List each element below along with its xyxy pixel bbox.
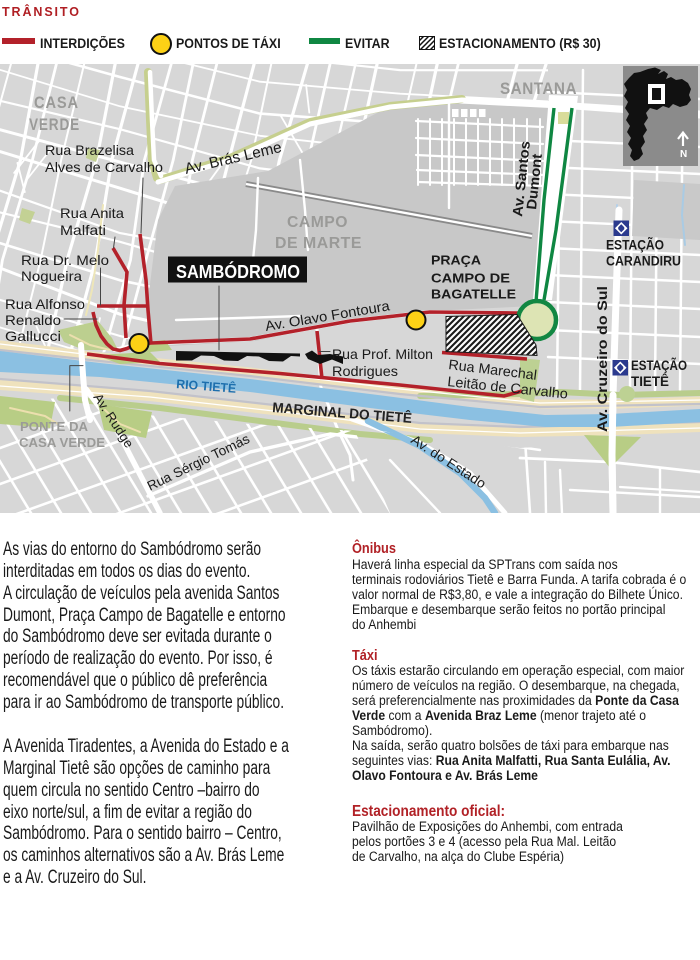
svg-text:Rua Prof. Milton: Rua Prof. Milton <box>332 346 433 362</box>
svg-text:SAMBÓDROMO: SAMBÓDROMO <box>176 261 300 282</box>
svg-text:Rua Brazelisa: Rua Brazelisa <box>45 142 134 158</box>
svg-text:Rua Dr. Melo: Rua Dr. Melo <box>21 252 109 268</box>
svg-text:Rodrigues: Rodrigues <box>332 363 398 379</box>
svg-text:Malfati: Malfati <box>60 222 106 238</box>
svg-text:CASA: CASA <box>34 94 79 112</box>
svg-text:Renaldo: Renaldo <box>5 312 61 328</box>
svg-text:ESTAÇÃO: ESTAÇÃO <box>631 358 687 373</box>
svg-text:PRAÇA: PRAÇA <box>431 253 482 268</box>
svg-text:Rua Alfonso: Rua Alfonso <box>5 296 85 312</box>
svg-text:Av. Cruzeiro do Sul: Av. Cruzeiro do Sul <box>595 286 610 432</box>
svg-text:SANTANA: SANTANA <box>500 80 577 98</box>
svg-text:BAGATELLE: BAGATELLE <box>431 287 516 302</box>
svg-text:Alves de Carvalho: Alves de Carvalho <box>45 159 163 175</box>
svg-text:CAMPO DE: CAMPO DE <box>431 271 510 286</box>
svg-text:PONTE DA: PONTE DA <box>20 420 88 434</box>
svg-text:DE MARTE: DE MARTE <box>275 235 362 252</box>
svg-text:TIETÊ: TIETÊ <box>631 374 669 389</box>
svg-text:Gallucci: Gallucci <box>5 328 61 344</box>
svg-text:CAMPO: CAMPO <box>287 214 348 231</box>
svg-text:Rua Anita: Rua Anita <box>60 205 124 221</box>
svg-text:Nogueira: Nogueira <box>21 268 82 284</box>
svg-text:N: N <box>680 149 687 160</box>
svg-text:ESTAÇÃO: ESTAÇÃO <box>606 238 664 253</box>
svg-text:CARANDIRU: CARANDIRU <box>606 254 681 269</box>
svg-text:VERDE: VERDE <box>29 116 80 134</box>
svg-text:CASA VERDE: CASA VERDE <box>19 436 105 450</box>
